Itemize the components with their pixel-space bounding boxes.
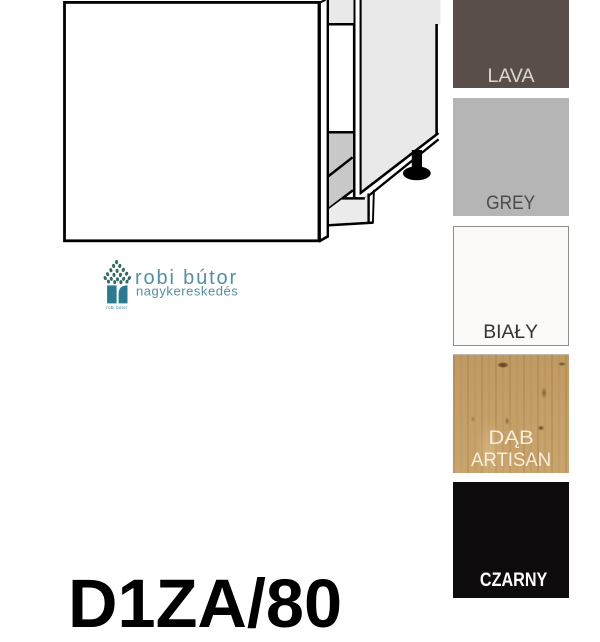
svg-text:robi bútor: robi bútor: [106, 305, 127, 310]
svg-text:nagykereskedés: nagykereskedés: [136, 283, 238, 298]
